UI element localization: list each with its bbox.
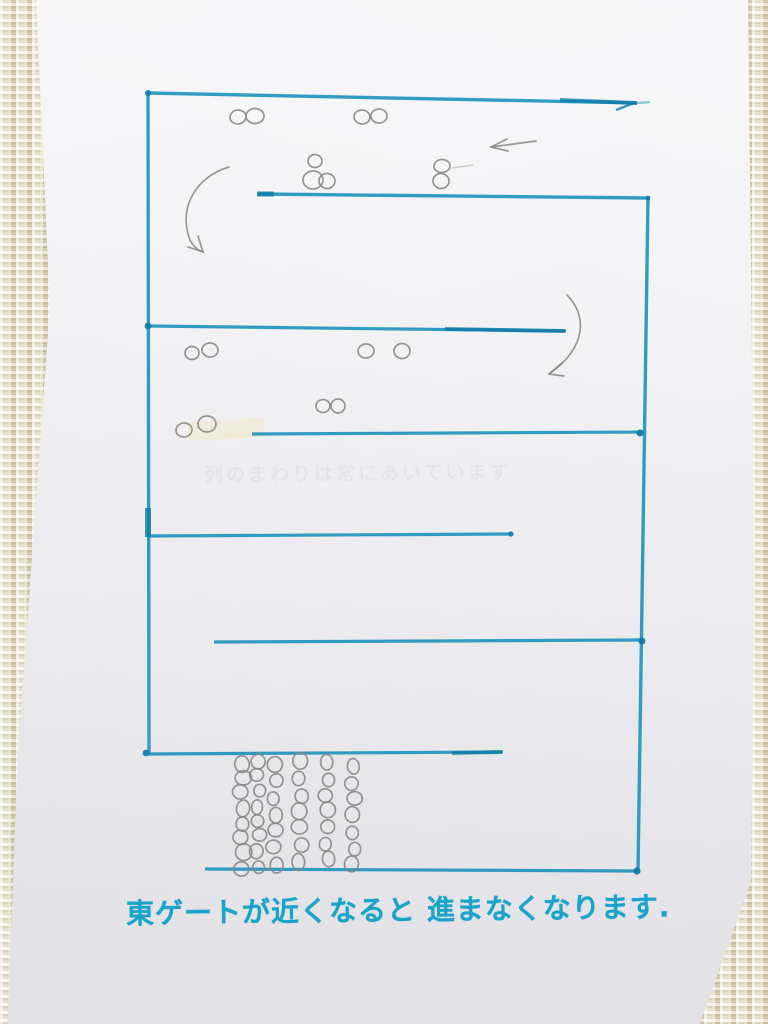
- photo-scene: 列のまわりは常にあいています 東ゲートが近くなると 進まなくなります.: [0, 0, 768, 1024]
- queue-maze-diagram: [0, 0, 768, 1024]
- erased-pencil-note: 列のまわりは常にあいています: [204, 456, 594, 487]
- curved-arrow-down-left: [186, 167, 229, 252]
- queue-crowd-grid: [232, 752, 362, 876]
- curved-arrow-down-right: [549, 295, 580, 376]
- handwritten-caption: 東ゲートが近くなると 進まなくなります.: [126, 886, 646, 932]
- arrow-left: [491, 139, 536, 151]
- pencil-people: [175, 109, 473, 438]
